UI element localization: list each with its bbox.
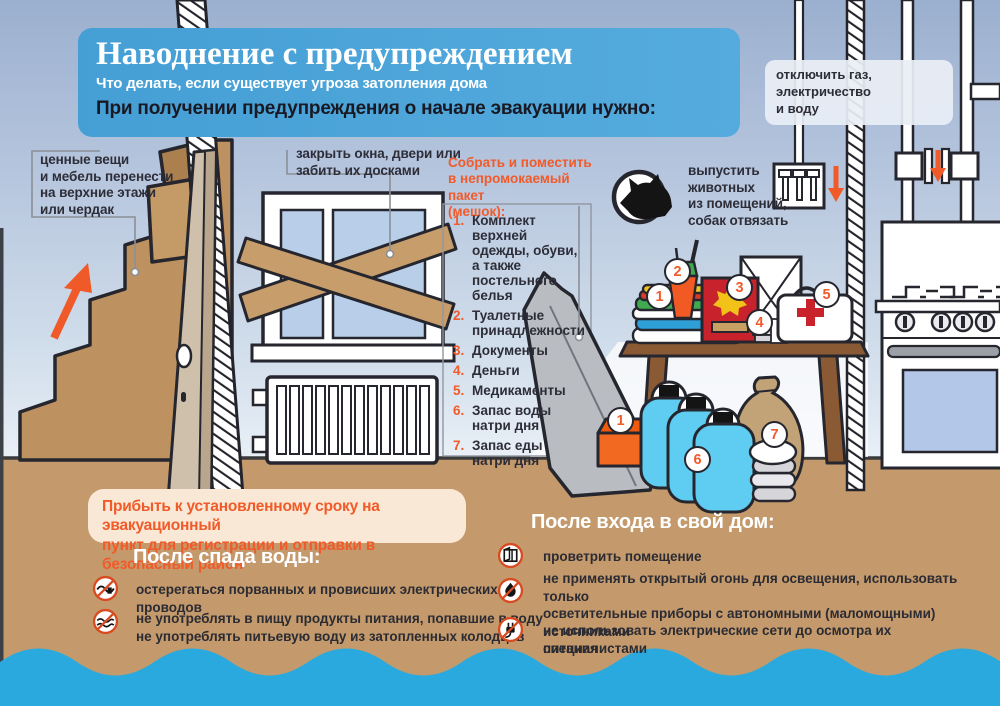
- badge-documents: 3: [726, 274, 753, 301]
- no-electricity-icon: [497, 616, 524, 643]
- boarded-window: [238, 193, 456, 361]
- header: Наводнение с предупреждением Что делать,…: [78, 28, 740, 137]
- badge-medicine: 5: [813, 281, 840, 308]
- badge-box: 1: [607, 407, 634, 434]
- page-subtitle: Что делать, если существует угроза затоп…: [96, 75, 740, 92]
- pack-item: 1.Комплект верхней одежды, обуви, а такж…: [453, 213, 585, 303]
- callout-utilities: отключить газ, электричество и воду: [765, 60, 953, 125]
- pack-list: 1.Комплект верхней одежды, обуви, а такж…: [443, 204, 591, 456]
- badge-food: 7: [761, 421, 788, 448]
- stove-knobs: [896, 313, 994, 331]
- oven-window: [903, 370, 997, 452]
- oven-handle: [888, 346, 1000, 357]
- no-flood-food-icon: [92, 608, 119, 635]
- header-instruction: При получении предупреждения о начале эв…: [96, 98, 740, 120]
- up-arrow: [54, 263, 92, 338]
- after-water-heading: После спада воды:: [133, 546, 320, 569]
- dog-icon: [614, 172, 672, 222]
- after-home-heading: После входа в свой дом:: [531, 511, 774, 534]
- pack-item: 4.Деньги: [453, 363, 585, 378]
- page-title: Наводнение с предупреждением: [96, 36, 740, 72]
- door-keyhole: [181, 392, 186, 402]
- badge-toiletries: 2: [664, 258, 691, 285]
- pack-item: 3.Документы: [453, 343, 585, 358]
- badge-money: 4: [746, 309, 773, 336]
- callout-valuables: ценные вещи и мебель перенести на верхни…: [40, 152, 250, 219]
- valve-right: [951, 153, 978, 179]
- pack-item: 5.Медикаменты: [453, 383, 585, 398]
- pack-item: 6.Запас воды натри дня: [453, 403, 585, 433]
- radiator: [253, 377, 437, 463]
- door-handle: [177, 345, 191, 367]
- canned-food: [750, 440, 796, 501]
- pack-item: 7.Запас еды натри дня: [453, 438, 585, 468]
- valve-left: [896, 153, 922, 179]
- no-open-fire-icon: [497, 577, 524, 604]
- no-wires-icon: [92, 575, 119, 602]
- gas-stove: [876, 222, 1000, 468]
- flood-infographic-poster: Наводнение с предупреждением Что делать,…: [0, 0, 1000, 706]
- after-home-item: проветрить помещение: [543, 548, 843, 566]
- open-window-icon: [497, 542, 524, 569]
- evacuation-notice: Прибыть к установленному сроку на эвакуа…: [88, 489, 466, 543]
- pack-item: 2.Туалетные принадлежности: [453, 308, 585, 338]
- after-water-item: не употреблять в пищу продукты питания, …: [136, 610, 556, 645]
- callout-animals: выпустить животных из помещений, собак о…: [688, 163, 818, 230]
- badge-water: 6: [684, 446, 711, 473]
- after-home-item: не использовать электрические сети до ос…: [543, 622, 973, 657]
- window-sill: [252, 345, 454, 361]
- left-edge: [0, 228, 4, 706]
- badge-clothes: 1: [646, 283, 673, 310]
